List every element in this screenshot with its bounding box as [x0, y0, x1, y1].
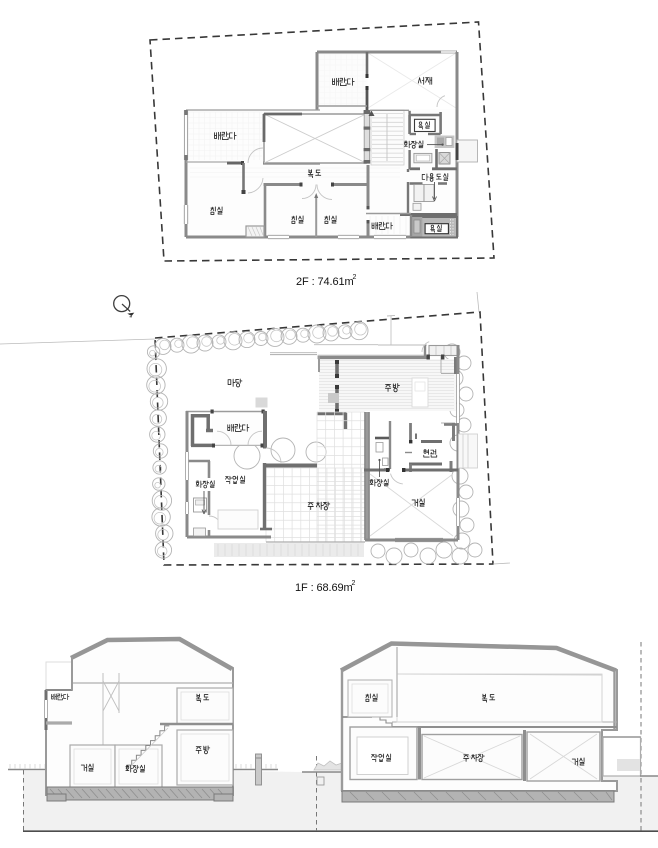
- svg-text:2: 2: [353, 274, 357, 281]
- svg-text:2F : 74.61m: 2F : 74.61m: [296, 276, 354, 288]
- svg-text:2: 2: [352, 580, 356, 587]
- svg-text:1F : 68.69m: 1F : 68.69m: [295, 582, 353, 594]
